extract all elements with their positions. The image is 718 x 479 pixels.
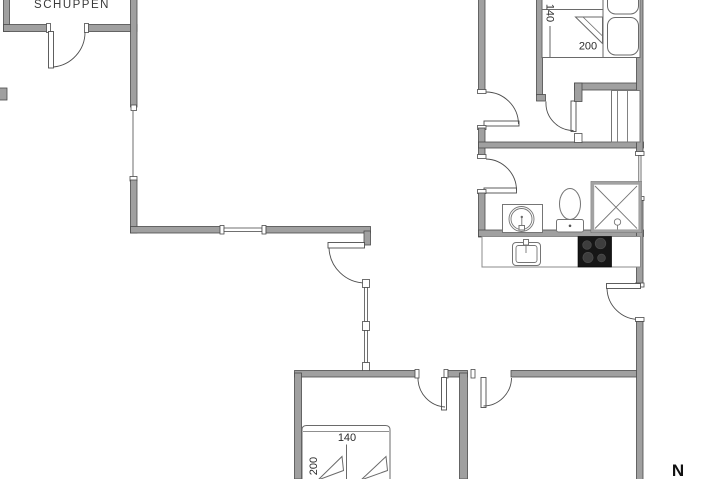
west-wall [131,180,138,233]
east-exterior-wall [637,322,644,479]
entrance-door-swing-icon [484,92,519,126]
kitchen-sink-icon [513,240,541,266]
shed-bottom-wall-left [4,25,48,32]
bed-length-dimension: 200 [579,41,597,53]
door-arc [418,378,445,407]
door-jamb [471,370,475,379]
burner [583,241,592,250]
bed-width-dimension: 140 [544,4,556,22]
floor-plan-page: SCHUPPEN [0,0,718,479]
door-arc [54,32,86,67]
window-jamb [636,152,645,156]
door-arc [486,92,519,124]
west-exterior-wall [479,0,486,92]
door-arc [546,102,574,131]
door-panel [571,101,576,132]
door-panel [328,243,365,249]
burner [583,252,593,262]
pillow-icon [608,18,639,56]
bed-length-dimension: 200 [308,457,320,475]
door-arc [486,159,517,191]
shed-room-label: SCHUPPEN [34,0,110,11]
window-icon [365,331,368,363]
window-jamb [363,280,370,288]
wall-jog [575,83,583,102]
door-jamb [478,90,487,94]
toilet-icon [557,189,584,233]
washbasin-icon [503,205,543,233]
sink-tap [524,240,529,246]
wardrobe-icon [612,91,641,143]
bedroom-door-swing-icon [418,378,447,411]
door-panel [442,378,447,411]
double-bed-bottom: 140 200 [302,426,390,479]
window-jamb [220,226,224,235]
terrace-door-swing-icon [328,243,366,284]
door-jamb [415,370,419,379]
windscreen-walls [130,177,371,372]
counter-outline [482,237,641,268]
shed-outbuilding: SCHUPPEN [4,0,138,111]
bedroom-top-wall [295,371,416,378]
cooktop-icon [578,237,612,268]
pillow-icon [608,0,639,14]
door-arc [607,289,639,320]
wall-end-cap [131,105,137,111]
door-jamb [444,370,448,379]
door-arc [329,248,366,283]
bathroom-door-swing-icon [484,159,517,193]
floor-plan-canvas: SCHUPPEN [0,0,718,479]
door-jamb [636,318,645,322]
terrace-back-wall [131,227,222,234]
shower-icon [591,182,642,233]
fence-post-stub [0,88,7,100]
bedroom-left-wall [295,373,302,479]
window-icon [365,288,368,322]
compass-north-label: N [672,461,684,479]
door-panel [484,188,517,193]
door-panel [49,32,54,69]
terrace-back-wall [266,227,371,234]
toilet-button [569,225,572,228]
middle-room-door-swing-icon [481,378,512,408]
wall-segment [511,371,641,378]
east-door-swing-icon [607,284,641,320]
shed-bottom-wall-right [88,25,137,32]
window-jamb [363,322,370,331]
bedroom-bottom-wall [575,83,643,90]
shed-door-swing-icon [49,32,86,69]
corner-wall [364,231,371,245]
room-divider-wall [460,373,468,479]
burner [598,254,606,262]
kitchen-counter [482,237,641,268]
door-panel [481,378,486,408]
burner [595,238,606,249]
window-jamb [262,226,266,235]
basin-tap-base [519,226,525,231]
double-bed-top: 140 200 [542,0,640,58]
wall-segment [537,95,546,102]
door-panel [607,284,641,289]
wardrobe-outline [612,91,641,143]
toilet-bowl [560,189,581,220]
bed-width-dimension: 140 [338,432,356,444]
shed-right-wall [131,0,138,107]
door-jamb [85,24,89,33]
basin-drain [521,216,523,218]
top-bedroom-door-swing-icon [546,101,576,132]
door-arc [484,378,512,406]
door-panel [484,121,519,126]
hall-bottom-wall [479,142,644,148]
cooktop-surface [578,237,612,268]
boundary-lines [0,88,133,177]
window-icon [224,228,262,232]
wall-end-cap [575,134,583,143]
door-jamb [478,155,487,159]
